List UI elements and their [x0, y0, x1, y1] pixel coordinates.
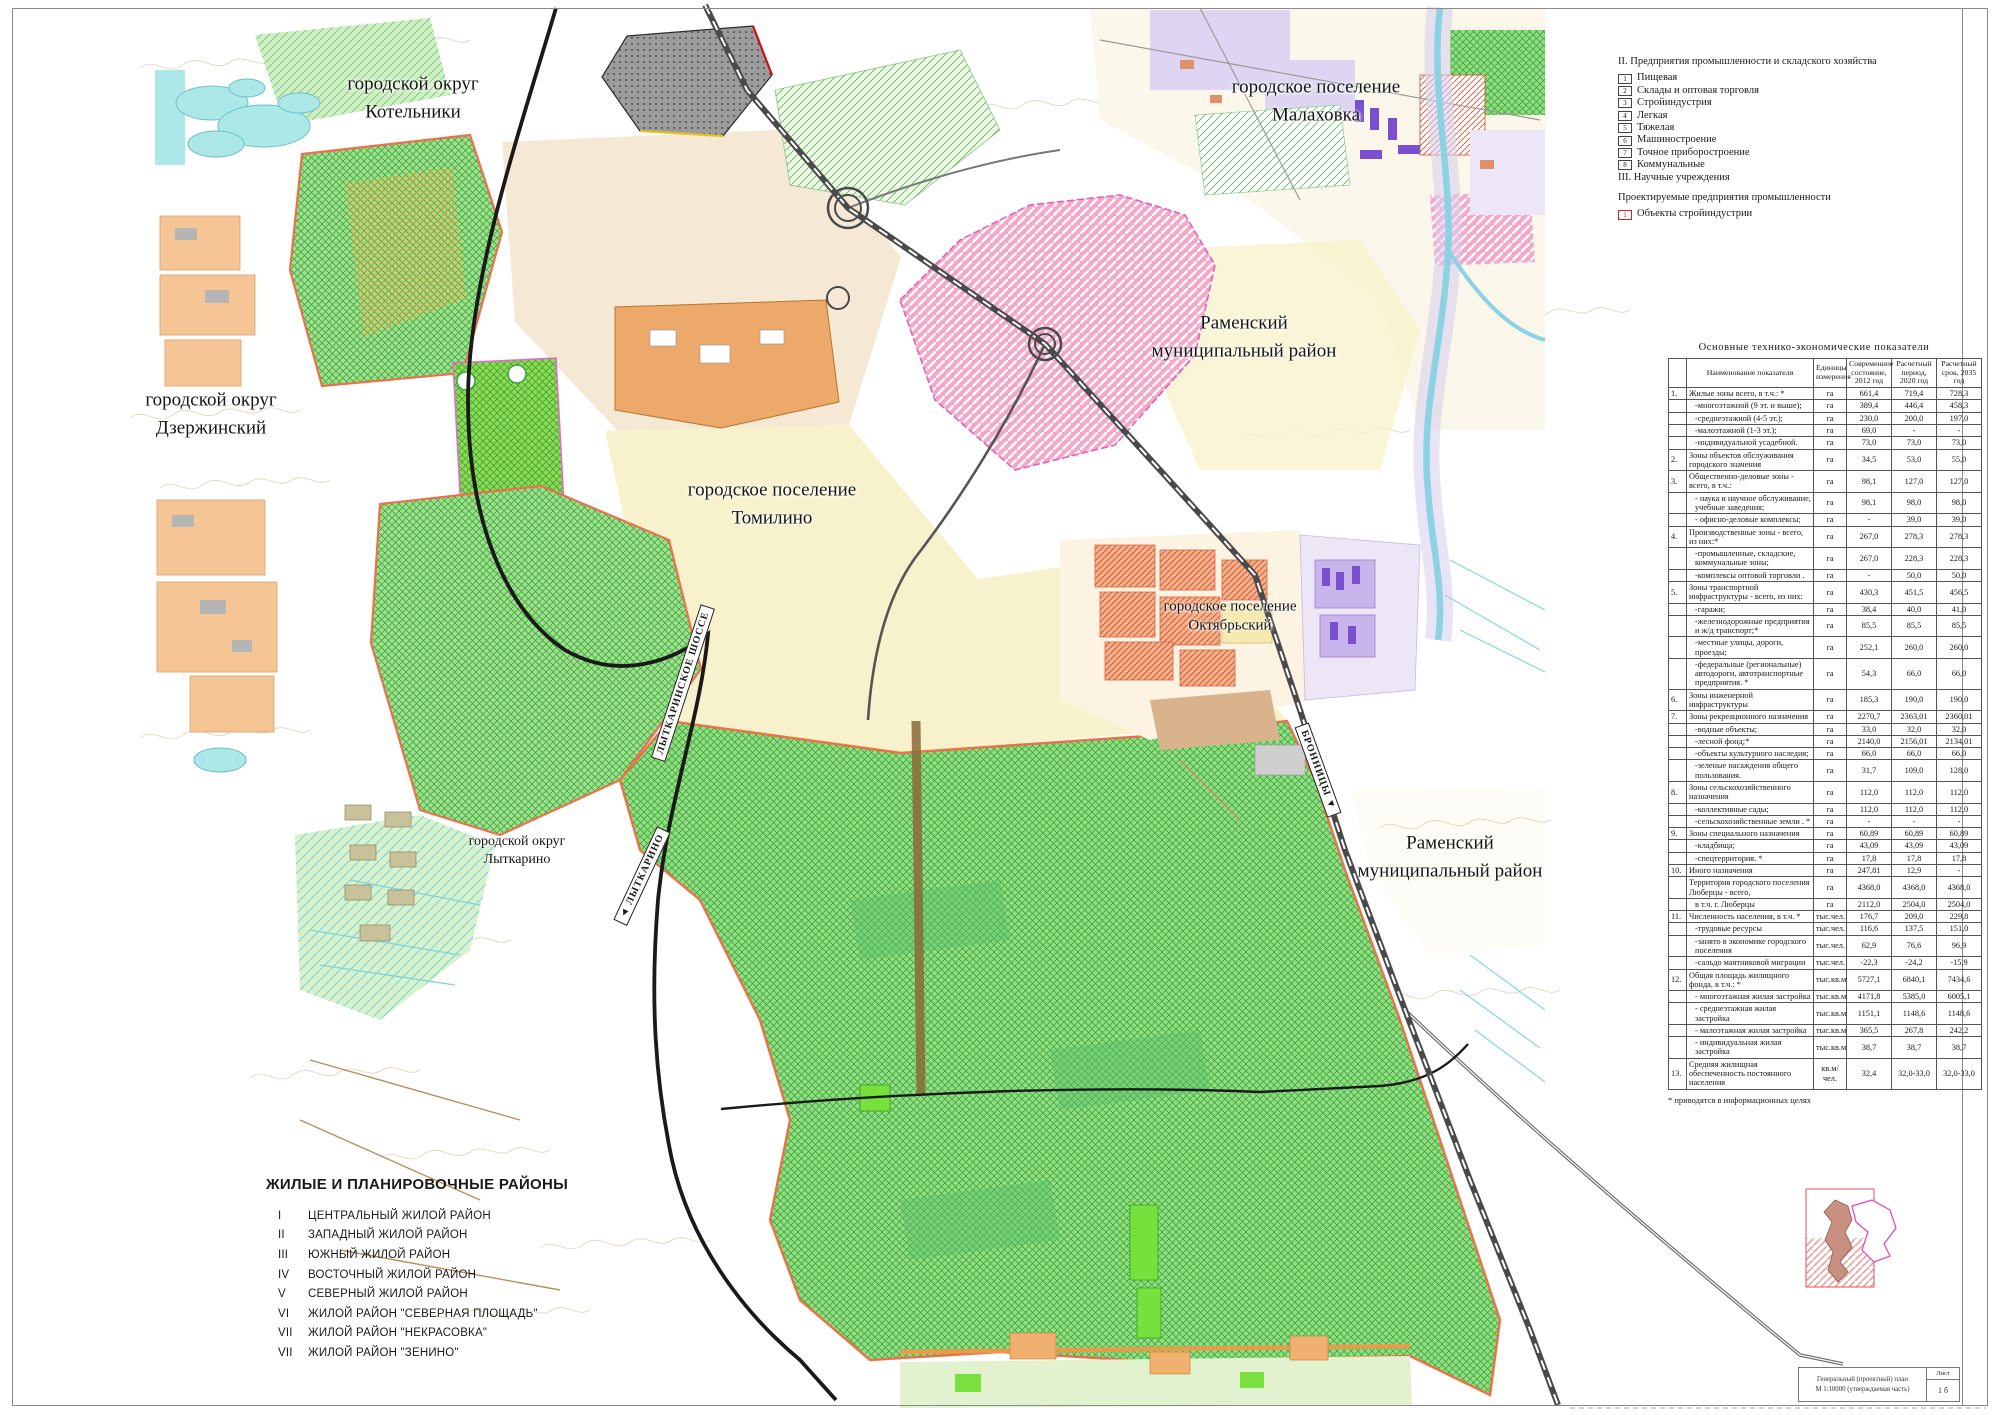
legend-item-number: 5: [1618, 123, 1632, 133]
table-row: - офисно-деловые комплексы;га-39,039,0: [1669, 514, 1982, 526]
row-unit: га: [1814, 388, 1847, 400]
row-value: 1148,6: [1892, 1003, 1937, 1025]
district-label: ВОСТОЧНЫЙ ЖИЛОЙ РАЙОН: [308, 1269, 476, 1281]
row-value: 73,0: [1937, 437, 1982, 449]
row-value: 2134,01: [1937, 735, 1982, 747]
row-value: 260,0: [1892, 637, 1937, 659]
area-label-tomilino: городское поселение Томилино: [688, 476, 856, 531]
indicators-tbody: 1.Жилые зоны всего, в т.ч.: *га661,4719,…: [1669, 388, 1982, 1089]
district-number: VI: [266, 1308, 308, 1320]
row-value: 112,0: [1937, 803, 1982, 815]
row-value: 267,0: [1847, 548, 1892, 570]
landfill-zone: [602, 26, 772, 136]
table-row: 13.Средняя жилищная обеспеченность посто…: [1669, 1058, 1982, 1089]
row-value: 60,89: [1937, 828, 1982, 840]
industry-items: 1Пищевая2Склады и оптовая торговля3Строй…: [1618, 72, 1963, 171]
table-row: 4.Производственные зоны - всего, из них:…: [1669, 526, 1982, 548]
row-value: 185,3: [1847, 689, 1892, 711]
table-row: 7.Зоны рекреационного назначенияга2270,7…: [1669, 711, 1982, 723]
legend-item-label: Склады и оптовая торговля: [1637, 85, 1759, 97]
legend-item-number: 1: [1618, 74, 1632, 84]
row-value: 1148,6: [1937, 1003, 1982, 1025]
row-name: Средняя жилищная обеспеченность постоянн…: [1687, 1058, 1814, 1089]
row-unit: тыс.кв.м: [1814, 1024, 1847, 1036]
row-value: 278,3: [1892, 526, 1937, 548]
table-row: 1.Жилые зоны всего, в т.ч.: *га661,4719,…: [1669, 388, 1982, 400]
row-value: -22,3: [1847, 957, 1892, 969]
district-number: III: [266, 1249, 308, 1261]
row-unit: га: [1814, 782, 1847, 804]
nursery-zone: [775, 50, 1000, 205]
row-value: 38,7: [1892, 1037, 1937, 1059]
row-unit: тыс.чел.: [1814, 935, 1847, 957]
row-value: -: [1937, 425, 1982, 437]
legend-item-label: Точное приборостроение: [1637, 147, 1750, 159]
table-row: 3.Общественно-деловые зоны - всего, в т.…: [1669, 471, 1982, 493]
col-name: Наименование показателя: [1687, 359, 1814, 388]
row-value: 32,0-33,0: [1892, 1058, 1937, 1089]
row-value: 5385,0: [1892, 991, 1937, 1003]
row-value: 60,89: [1892, 828, 1937, 840]
row-name: Зоны транспортной инфраструктуры - всего…: [1687, 581, 1814, 603]
row-value: 2156,01: [1892, 735, 1937, 747]
table-row: 12.Общая площадь жилищного фонда, в т.ч.…: [1669, 969, 1982, 991]
row-name: - среднеэтажная жилая застройка: [1687, 1003, 1814, 1025]
table-row: 9.Зоны специального назначенияга60,8960,…: [1669, 828, 1982, 840]
row-unit: га: [1814, 748, 1847, 760]
row-value: -: [1847, 569, 1892, 581]
row-value: 209,0: [1892, 911, 1937, 923]
row-value: 39,0: [1892, 514, 1937, 526]
row-unit: га: [1814, 637, 1847, 659]
row-value: 98,1: [1847, 471, 1892, 493]
row-unit: га: [1814, 711, 1847, 723]
row-value: 151,0: [1937, 923, 1982, 935]
row-value: 112,0: [1892, 782, 1937, 804]
row-value: 451,5: [1892, 581, 1937, 603]
tomilino-industrial: [615, 300, 839, 428]
district-number: VII: [266, 1327, 308, 1339]
district-item: IIIЮЖНЫЙ ЖИЛОЙ РАЙОН: [266, 1245, 646, 1265]
row-value: 4368,0: [1892, 877, 1937, 899]
row-value: 137,5: [1892, 923, 1937, 935]
row-name: - наука и научное обслуживание, учебные …: [1687, 492, 1814, 514]
title-block-line1: Генеральный (проектный) план: [1817, 1375, 1908, 1384]
row-unit: га: [1814, 852, 1847, 864]
row-value: 73,0: [1847, 437, 1892, 449]
legend-item-number: 6: [1618, 136, 1632, 146]
row-name: Зоны специального назначения: [1687, 828, 1814, 840]
row-value: 2504,0: [1892, 898, 1937, 910]
row-unit: га: [1814, 815, 1847, 827]
table-row: 11.Численность населения, в т.ч. *тыс.че…: [1669, 911, 1982, 923]
row-name: -спецтерритория. *: [1687, 852, 1814, 864]
row-unit: га: [1814, 603, 1847, 615]
row-value: 66,0: [1937, 658, 1982, 689]
projected-legend-item: 1Объекты стройиндустрии: [1618, 208, 1963, 220]
table-row: 5.Зоны транспортной инфраструктуры - все…: [1669, 581, 1982, 603]
table-row: -местные улицы, дороги, проезды;га252,12…: [1669, 637, 1982, 659]
row-value: 38,4: [1847, 603, 1892, 615]
legend-item-number: 8: [1618, 160, 1632, 170]
row-value: 2360,01: [1937, 711, 1982, 723]
projected-item-label: Объекты стройиндустрии: [1637, 208, 1752, 220]
row-value: 109,0: [1892, 760, 1937, 782]
area-dzerzhinsky: [157, 500, 277, 772]
row-name: -водные объекты;: [1687, 723, 1814, 735]
row-value: -: [1847, 514, 1892, 526]
row-unit: га: [1814, 471, 1847, 493]
districts-legend: ЖИЛЫЕ И ПЛАНИРОВОЧНЫЕ РАЙОНЫ IЦЕНТРАЛЬНЫ…: [266, 1176, 646, 1363]
row-unit: га: [1814, 803, 1847, 815]
district-number: I: [266, 1210, 308, 1222]
area-label-malahovka: городское поселение Малаховка: [1232, 73, 1400, 128]
row-name: - офисно-деловые комплексы;: [1687, 514, 1814, 526]
row-value: 66,0: [1892, 748, 1937, 760]
row-value: 12,9: [1892, 864, 1937, 876]
row-name: -лесной фонд;*: [1687, 735, 1814, 747]
row-unit: га: [1814, 581, 1847, 603]
row-value: 33,0: [1847, 723, 1892, 735]
row-value: 267,8: [1892, 1024, 1937, 1036]
area-label-oktyabrsky: городское поселение Октябрьский: [1163, 597, 1296, 635]
row-unit: тыс.чел.: [1814, 911, 1847, 923]
row-value: 41,0: [1937, 603, 1982, 615]
table-row: -железнодорожные предприятия и ж/д транс…: [1669, 615, 1982, 637]
table-row: 2.Зоны объектов обслуживания городского …: [1669, 449, 1982, 471]
table-row: - многоэтажная жилая застройкатыс.кв.м41…: [1669, 991, 1982, 1003]
table-row: в т.ч. г. Люберцыга2112,02504,02504,0: [1669, 898, 1982, 910]
table-row: -сальдо маятниковой миграциитыс.чел.-22,…: [1669, 957, 1982, 969]
row-value: 200,0: [1892, 412, 1937, 424]
districts-items: IЦЕНТРАЛЬНЫЙ ЖИЛОЙ РАЙОНIIЗАПАДНЫЙ ЖИЛОЙ…: [266, 1206, 646, 1363]
row-value: 43,09: [1937, 840, 1982, 852]
row-value: 176,7: [1847, 911, 1892, 923]
legend-item: 8Коммунальные: [1618, 159, 1963, 171]
table-row: -сельскохозяйственные земли . *га---: [1669, 815, 1982, 827]
area-label-ramensky-ne: Раменский муниципальный район: [1152, 309, 1337, 364]
row-value: -24,2: [1892, 957, 1937, 969]
row-name: -зеленые насаждения общего пользования.: [1687, 760, 1814, 782]
row-value: 98,1: [1847, 492, 1892, 514]
row-value: 446,4: [1892, 400, 1937, 412]
row-name: Зоны объектов обслуживания городского зн…: [1687, 449, 1814, 471]
table-row: -коллективные сады;га112,0112,0112,0: [1669, 803, 1982, 815]
row-value: 260,0: [1937, 637, 1982, 659]
table-row: Территория городского поселения Люберцы …: [1669, 877, 1982, 899]
row-name: Иного назначения: [1687, 864, 1814, 876]
row-value: 34,5: [1847, 449, 1892, 471]
legend-item-label: Легкая: [1637, 110, 1667, 122]
district-label: ЖИЛОЙ РАЙОН "СЕВЕРНАЯ ПЛОЩАДЬ": [308, 1308, 538, 1320]
col-2035: Расчетный срок, 2035 год: [1937, 359, 1982, 388]
table-row: 8.Зоны сельскохозяйственного назначенияг…: [1669, 782, 1982, 804]
sheet-number: 1 б: [1927, 1380, 1959, 1401]
row-name: Производственные зоны - всего, из них:*: [1687, 526, 1814, 548]
table-footnote: * приводятся в информационных целях: [1668, 1095, 1960, 1105]
table-row: -гаражи;га38,440,041,0: [1669, 603, 1982, 615]
row-unit: га: [1814, 898, 1847, 910]
row-unit: га: [1814, 425, 1847, 437]
row-value: 43,09: [1892, 840, 1937, 852]
table-row: -спецтерритория. *га17,817,817,8: [1669, 852, 1982, 864]
table-row: -федеральные (региональные) автодороги, …: [1669, 658, 1982, 689]
table-row: -малоэтажной (1-3 эт.);га69,0--: [1669, 425, 1982, 437]
row-value: 252,1: [1847, 637, 1892, 659]
row-value: 76,6: [1892, 935, 1937, 957]
row-unit: га: [1814, 449, 1847, 471]
row-value: 17,8: [1892, 852, 1937, 864]
row-name: -федеральные (региональные) автодороги, …: [1687, 658, 1814, 689]
row-value: 85,5: [1847, 615, 1892, 637]
row-name: -среднеэтажной (4-5 эт.);: [1687, 412, 1814, 424]
area-label-dzerzhinsky: городской округ Дзержинский: [145, 386, 276, 441]
row-unit: га: [1814, 526, 1847, 548]
row-value: 112,0: [1892, 803, 1937, 815]
row-name: Зоны сельскохозяйственного назначения: [1687, 782, 1814, 804]
row-unit: га: [1814, 840, 1847, 852]
row-unit: га: [1814, 760, 1847, 782]
table-row: -занято в экономике городского поселения…: [1669, 935, 1982, 957]
row-value: -15,9: [1937, 957, 1982, 969]
table-row: - малоэтажная жилая застройкатыс.кв.м365…: [1669, 1024, 1982, 1036]
row-value: 66,0: [1892, 658, 1937, 689]
row-unit: тыс.чел.: [1814, 957, 1847, 969]
district-label: ЮЖНЫЙ ЖИЛОЙ РАЙОН: [308, 1249, 450, 1261]
row-name: - малоэтажная жилая застройка: [1687, 1024, 1814, 1036]
row-value: 39,0: [1937, 514, 1982, 526]
row-value: 73,0: [1892, 437, 1937, 449]
table-row: - индивидуальная жилая застройкатыс.кв.м…: [1669, 1037, 1982, 1059]
col-2012: Современное состояние, 2012 год: [1847, 359, 1892, 388]
inset-location-map: [1806, 1189, 1896, 1287]
table-row: -зеленые насаждения общего пользования.г…: [1669, 760, 1982, 782]
row-value: 197,0: [1937, 412, 1982, 424]
row-value: 127,0: [1892, 471, 1937, 493]
row-unit: га: [1814, 412, 1847, 424]
row-value: 31,7: [1847, 760, 1892, 782]
row-unit: га: [1814, 569, 1847, 581]
row-value: -: [1937, 815, 1982, 827]
row-name: Общая площадь жилищного фонда, в т.ч.: *: [1687, 969, 1814, 991]
row-unit: га: [1814, 689, 1847, 711]
row-value: 229,8: [1937, 911, 1982, 923]
legend-item: 1Пищевая: [1618, 72, 1963, 84]
row-value: 1151,1: [1847, 1003, 1892, 1025]
row-unit: га: [1814, 877, 1847, 899]
row-value: 17,8: [1847, 852, 1892, 864]
district-item: VIIЖИЛОЙ РАЙОН "ЗЕНИНО": [266, 1343, 646, 1363]
legend-item-label: Тяжелая: [1637, 122, 1674, 134]
row-value: 40,0: [1892, 603, 1937, 615]
marsh-area: [295, 815, 495, 1020]
legend-item: 2Склады и оптовая торговля: [1618, 85, 1963, 97]
district-item: IIЗАПАДНЫЙ ЖИЛОЙ РАЙОН: [266, 1226, 646, 1246]
row-unit: га: [1814, 492, 1847, 514]
row-unit: га: [1814, 437, 1847, 449]
table-row: -промышленные, складские, коммунальные з…: [1669, 548, 1982, 570]
row-value: 32,0: [1937, 723, 1982, 735]
row-name: -комплексы оптовой торговли .: [1687, 569, 1814, 581]
row-unit: га: [1814, 828, 1847, 840]
district-item: VIIЖИЛОЙ РАЙОН "НЕКРАСОВКА": [266, 1324, 646, 1344]
row-unit: га: [1814, 735, 1847, 747]
row-name: - индивидуальная жилая застройка: [1687, 1037, 1814, 1059]
col-unit: Единицы измерения: [1814, 359, 1847, 388]
row-name: -железнодорожные предприятия и ж/д транс…: [1687, 615, 1814, 637]
district-number: V: [266, 1288, 308, 1300]
district-item: IЦЕНТРАЛЬНЫЙ ЖИЛОЙ РАЙОН: [266, 1206, 646, 1226]
row-value: 458,3: [1937, 400, 1982, 412]
row-value: 190,0: [1892, 689, 1937, 711]
row-unit: га: [1814, 658, 1847, 689]
area-kotelniki: [155, 70, 564, 512]
row-unit: га: [1814, 723, 1847, 735]
row-value: 5727,1: [1847, 969, 1892, 991]
row-name: -занято в экономике городского поселения: [1687, 935, 1814, 957]
row-value: 60,89: [1847, 828, 1892, 840]
district-label: СЕВЕРНЫЙ ЖИЛОЙ РАЙОН: [308, 1288, 468, 1300]
area-label-lytkarino: городской округ Лыткарино: [469, 833, 566, 869]
row-name: -сельскохозяйственные земли . *: [1687, 815, 1814, 827]
row-value: 98,0: [1937, 492, 1982, 514]
row-value: 38,7: [1847, 1037, 1892, 1059]
row-value: 50,0: [1892, 569, 1937, 581]
row-name: Жилые зоны всего, в т.ч.: *: [1687, 388, 1814, 400]
row-name: -объекты культурного наследия;: [1687, 748, 1814, 760]
district-number: II: [266, 1229, 308, 1241]
row-name: -кладбища;: [1687, 840, 1814, 852]
row-value: 85,5: [1892, 615, 1937, 637]
district-item: IVВОСТОЧНЫЙ ЖИЛОЙ РАЙОН: [266, 1265, 646, 1285]
row-value: 2140,0: [1847, 735, 1892, 747]
row-value: 55,0: [1937, 449, 1982, 471]
area-label-kotelniki: городской округ Котельники: [347, 70, 478, 125]
row-value: 2363,01: [1892, 711, 1937, 723]
district-label: ЖИЛОЙ РАЙОН "НЕКРАСОВКА": [308, 1327, 487, 1339]
row-value: 112,0: [1847, 782, 1892, 804]
row-value: 116,6: [1847, 923, 1892, 935]
plan-sheet: городской округ Котельники городское пос…: [0, 0, 2000, 1415]
district-label: ЗАПАДНЫЙ ЖИЛОЙ РАЙОН: [308, 1229, 467, 1241]
row-name: -трудовые ресурсы: [1687, 923, 1814, 935]
legend-item: 6Машиностроение: [1618, 134, 1963, 146]
row-unit: тыс.кв.м: [1814, 1037, 1847, 1059]
indicators-table: Основные технико-экономические показател…: [1668, 342, 1960, 1105]
row-value: 128,0: [1937, 760, 1982, 782]
row-value: 190,0: [1937, 689, 1982, 711]
legend-item-label: Машиностроение: [1637, 134, 1716, 146]
row-value: 228,3: [1892, 548, 1937, 570]
row-value: 456,5: [1937, 581, 1982, 603]
table-row: -трудовые ресурсытыс.чел.116,6137,5151,0: [1669, 923, 1982, 935]
row-name: -гаражи;: [1687, 603, 1814, 615]
table-row: -индивидуальной усадебной.га73,073,073,0: [1669, 437, 1982, 449]
industry-section2-title: II. Предприятия промышленности и складск…: [1618, 56, 1963, 68]
row-value: 96,9: [1937, 935, 1982, 957]
legend-item: 5Тяжелая: [1618, 122, 1963, 134]
row-value: 38,7: [1937, 1037, 1982, 1059]
table-row: 10.Иного назначенияга247,8112,9-: [1669, 864, 1982, 876]
row-value: 2112,0: [1847, 898, 1892, 910]
row-value: 112,0: [1847, 803, 1892, 815]
row-value: 85,5: [1937, 615, 1982, 637]
row-name: -промышленные, складские, коммунальные з…: [1687, 548, 1814, 570]
row-value: 267,0: [1847, 526, 1892, 548]
row-unit: кв.м/чел.: [1814, 1058, 1847, 1089]
district-number: VII: [266, 1347, 308, 1359]
district-item: VIЖИЛОЙ РАЙОН "СЕВЕРНАЯ ПЛОЩАДЬ": [266, 1304, 646, 1324]
row-value: 6005,1: [1937, 991, 1982, 1003]
table-row: - наука и научное обслуживание, учебные …: [1669, 492, 1982, 514]
row-value: 242,2: [1937, 1024, 1982, 1036]
row-value: 4171,8: [1847, 991, 1892, 1003]
legend-item-label: Пищевая: [1637, 72, 1677, 84]
row-name: -местные улицы, дороги, проезды;: [1687, 637, 1814, 659]
row-value: 54,3: [1847, 658, 1892, 689]
industry-section3-title: III. Научные учреждения: [1618, 172, 1963, 184]
row-value: 719,4: [1892, 388, 1937, 400]
row-value: -: [1847, 815, 1892, 827]
area-label-ramensky-se: Раменский муниципальный район: [1358, 829, 1543, 884]
projected-items: 1Объекты стройиндустрии: [1618, 208, 1963, 220]
table-row: -водные объекты;га33,032,032,0: [1669, 723, 1982, 735]
row-value: 230,0: [1847, 412, 1892, 424]
row-value: -: [1892, 815, 1937, 827]
row-value: 53,0: [1892, 449, 1937, 471]
table-row: 6.Зоны инженерной инфраструктурыга185,31…: [1669, 689, 1982, 711]
table-row: -комплексы оптовой торговли .га-50,050,0: [1669, 569, 1982, 581]
row-value: 6840,1: [1892, 969, 1937, 991]
projected-title: Проектируемые предприятия промышленности: [1618, 192, 1963, 204]
district-item: VСЕВЕРНЫЙ ЖИЛОЙ РАЙОН: [266, 1284, 646, 1304]
row-value: 69,0: [1847, 425, 1892, 437]
row-name: - многоэтажная жилая застройка: [1687, 991, 1814, 1003]
row-unit: га: [1814, 864, 1847, 876]
row-value: 127,0: [1937, 471, 1982, 493]
industry-legend: II. Предприятия промышленности и складск…: [1618, 56, 1963, 221]
row-value: 62,9: [1847, 935, 1892, 957]
row-value: -: [1937, 864, 1982, 876]
row-value: 247,81: [1847, 864, 1892, 876]
districts-title: ЖИЛЫЕ И ПЛАНИРОВОЧНЫЕ РАЙОНЫ: [266, 1176, 646, 1193]
legend-item-number: 2: [1618, 86, 1632, 96]
row-value: 2504,0: [1937, 898, 1982, 910]
title-block-name: Генеральный (проектный) план М 1:10000 (…: [1799, 1368, 1927, 1401]
district-number: IV: [266, 1269, 308, 1281]
row-value: 430,3: [1847, 581, 1892, 603]
row-name: -многоэтажной (9 эт. и выше);: [1687, 400, 1814, 412]
title-block: Генеральный (проектный) план М 1:10000 (…: [1798, 1367, 1960, 1402]
table-row: -кладбища;га43,0943,0943,09: [1669, 840, 1982, 852]
row-value: 43,09: [1847, 840, 1892, 852]
row-name: -индивидуальной усадебной.: [1687, 437, 1814, 449]
legend-item: 4Легкая: [1618, 110, 1963, 122]
legend-item-number: 7: [1618, 148, 1632, 158]
col-2020: Расчетный период, 2020 год: [1892, 359, 1937, 388]
row-unit: тыс.кв.м: [1814, 1003, 1847, 1025]
row-value: 112,0: [1937, 782, 1982, 804]
title-block-line2: М 1:10000 (утверждаемая часть): [1815, 1385, 1909, 1394]
table-row: - среднеэтажная жилая застройкатыс.кв.м1…: [1669, 1003, 1982, 1025]
row-unit: тыс.чел.: [1814, 923, 1847, 935]
legend-item: 3Стройиндустрия: [1618, 97, 1963, 109]
row-value: 228,3: [1937, 548, 1982, 570]
row-name: Общественно-деловые зоны - всего, в т.ч.…: [1687, 471, 1814, 493]
row-value: 4368,0: [1937, 877, 1982, 899]
row-value: 50,0: [1937, 569, 1982, 581]
row-value: 278,3: [1937, 526, 1982, 548]
